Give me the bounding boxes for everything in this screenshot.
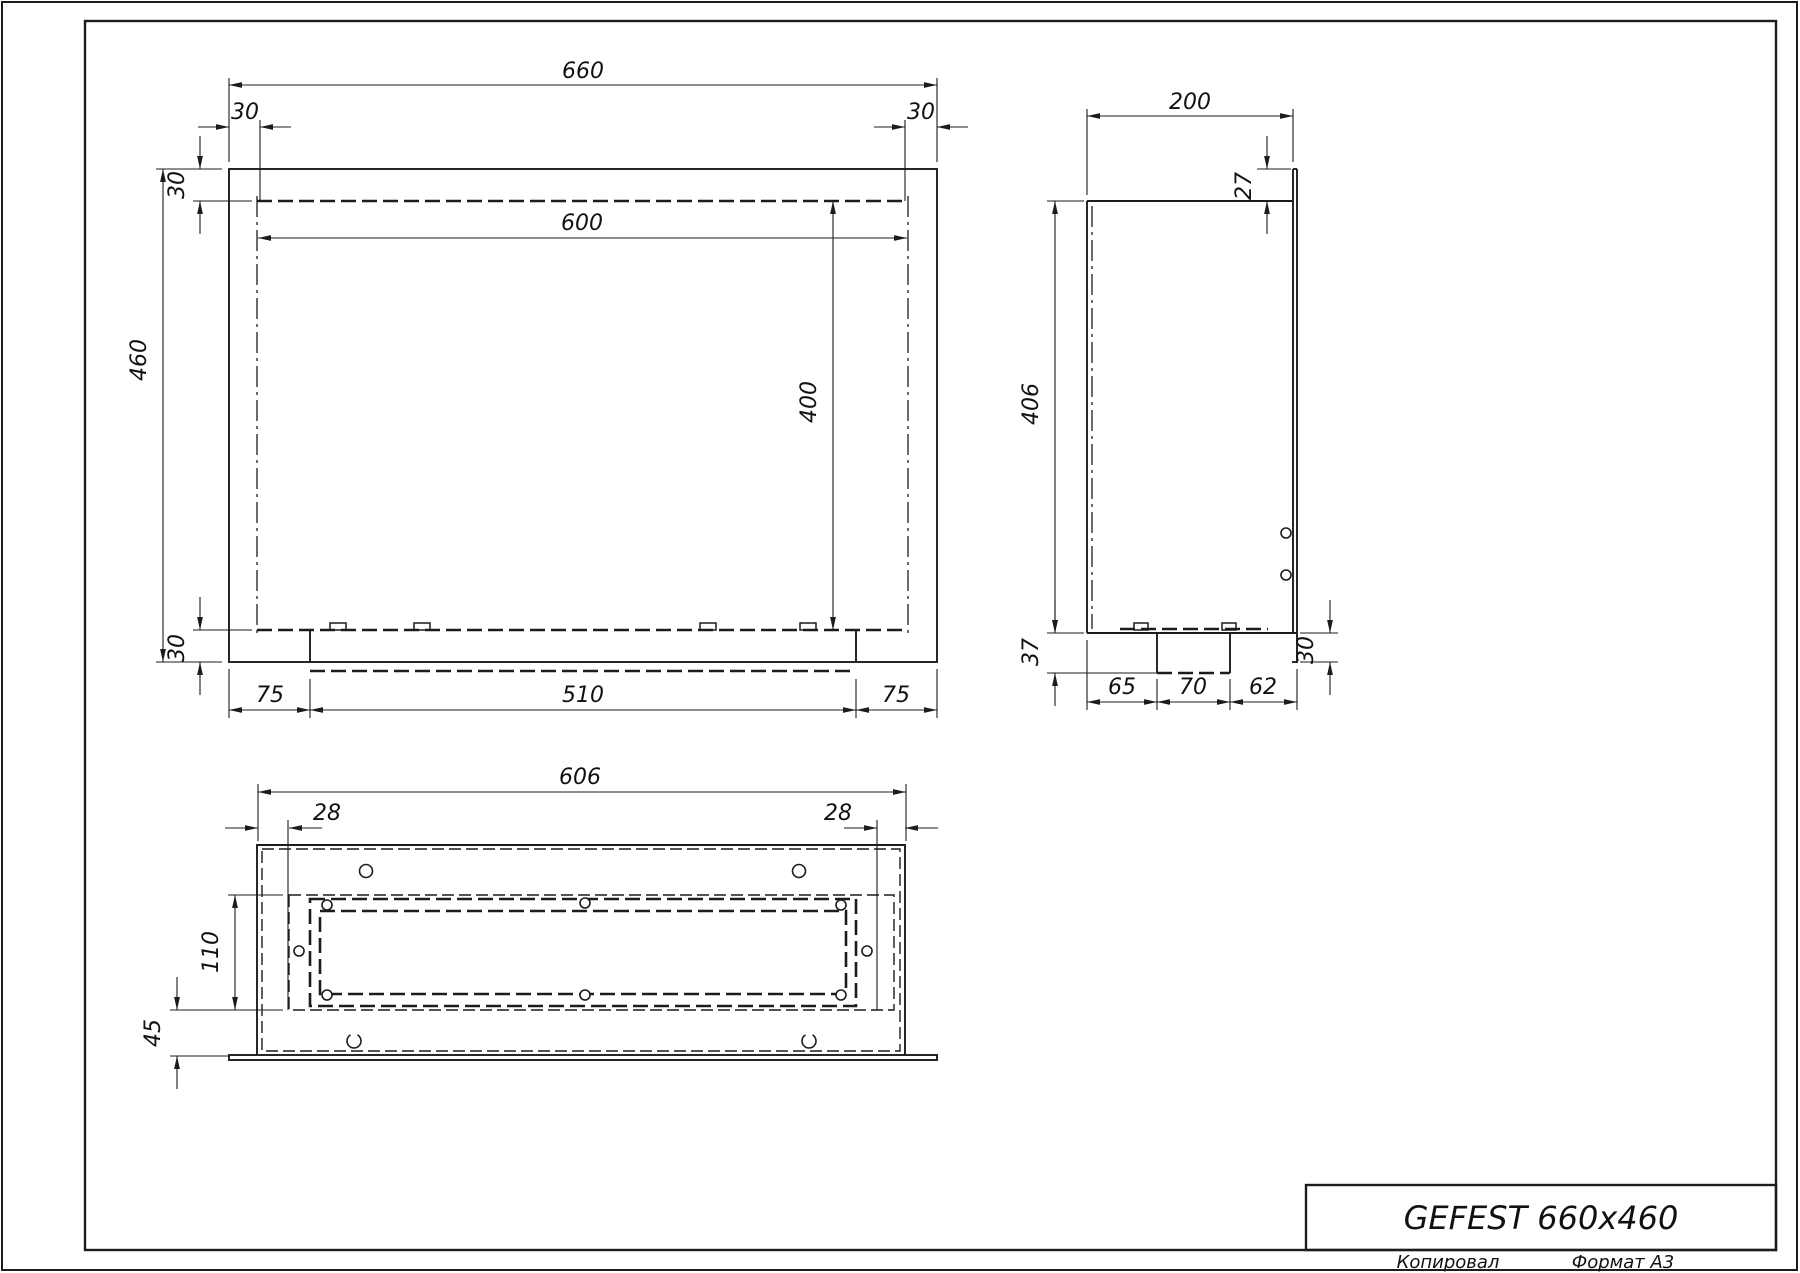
dim-front-flange-right: 30 — [907, 100, 935, 125]
dim-side-seg-left: 65 — [1108, 675, 1136, 700]
dim-bottom-frame-height: 110 — [199, 931, 224, 973]
copied-label: Копировал — [1397, 1252, 1500, 1273]
dim-side-bottom-plate: 37 — [1019, 638, 1044, 666]
dim-front-total-width: 660 — [562, 59, 604, 84]
dim-bottom-width: 606 — [559, 765, 601, 790]
dim-side-seg-right: 62 — [1249, 675, 1277, 700]
dim-side-depth: 200 — [1169, 90, 1211, 115]
bottom-view-dimensions: 606 28 28 110 45 — [141, 765, 938, 1089]
dim-front-bottom-center: 510 — [562, 683, 604, 708]
dim-front-bottom-right: 75 — [882, 683, 910, 708]
dim-side-flange-drop: 30 — [1294, 636, 1319, 664]
front-view-dimensions: 660 30 30 600 460 30 400 30 — [127, 59, 968, 718]
side-view — [1087, 169, 1298, 673]
dim-bottom-inset-left: 28 — [313, 801, 341, 826]
dim-front-bottom-left: 75 — [256, 683, 284, 708]
dim-side-lip: 27 — [1232, 172, 1257, 200]
dim-front-bottom-band: 30 — [165, 634, 190, 662]
dim-front-total-height: 460 — [127, 339, 152, 381]
dim-bottom-front-offset: 45 — [141, 1019, 166, 1047]
side-view-dimensions: 200 27 406 37 65 70 62 30 — [1019, 90, 1338, 710]
dim-side-seg-center: 70 — [1179, 675, 1207, 700]
dim-front-top-band: 30 — [165, 171, 190, 199]
title-block: GEFEST 660x460 Копировал Формат А3 — [1306, 1185, 1776, 1273]
front-view — [229, 120, 937, 671]
drawing-sheet: 660 30 30 600 460 30 400 30 — [0, 0, 1800, 1273]
dim-front-opening-height: 400 — [797, 381, 822, 423]
dim-bottom-inset-right: 28 — [824, 801, 852, 826]
format-label: Формат А3 — [1572, 1252, 1675, 1273]
dim-front-flange-left: 30 — [231, 100, 259, 125]
page-border — [2, 2, 1797, 1270]
dim-side-height: 406 — [1019, 383, 1044, 425]
drawing-title: GEFEST 660x460 — [1404, 1199, 1679, 1237]
drawing-svg: 660 30 30 600 460 30 400 30 — [0, 0, 1800, 1273]
bottom-view — [229, 845, 937, 1060]
dim-front-opening-width: 600 — [561, 211, 603, 236]
